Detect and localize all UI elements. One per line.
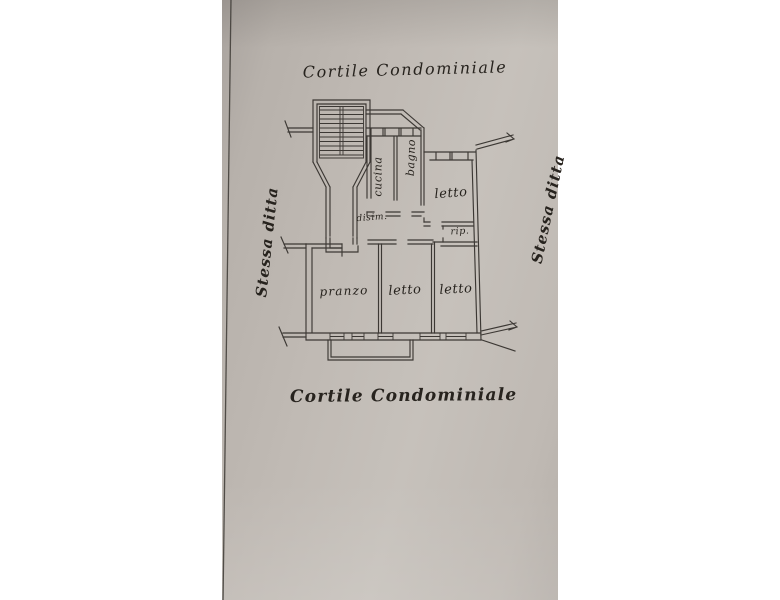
entry-vestibule (326, 238, 358, 256)
letto-top-walls (424, 150, 481, 340)
room-label-pranzo: pranzo (318, 283, 370, 299)
balcony (328, 340, 413, 360)
bottom-windows (330, 333, 466, 340)
boundary-stub-top-left (285, 121, 313, 137)
page-border-line (223, 0, 231, 600)
room-label-cucina: cucina (372, 147, 385, 207)
scanned-floor-plan-page: Cortile Condominiale Cortile Condominial… (0, 0, 780, 600)
stair-funnel (313, 162, 370, 238)
bagno-east-wall (421, 128, 424, 222)
courtyard-label-bottom: Cortile Condominiale (290, 385, 508, 407)
boundary-arrow-top-right (476, 133, 514, 149)
lower-rooms-top-walls (306, 240, 477, 248)
stairwell-walls (313, 100, 370, 162)
room-label-letto-right: letto (431, 281, 482, 299)
room-label-bagno: bagno (403, 127, 418, 187)
stair-treads (320, 107, 364, 159)
cucina-bagno-partition (394, 137, 397, 200)
floor-plan-drawing (0, 0, 780, 600)
boundary-arrow-bottom-right (481, 321, 517, 351)
boundary-stub-bottom-left (279, 327, 306, 346)
boundary-stub-mid-left (281, 237, 306, 253)
room-label-letto-mid: letto (381, 282, 430, 299)
room-label-rip: rip. (445, 225, 476, 238)
